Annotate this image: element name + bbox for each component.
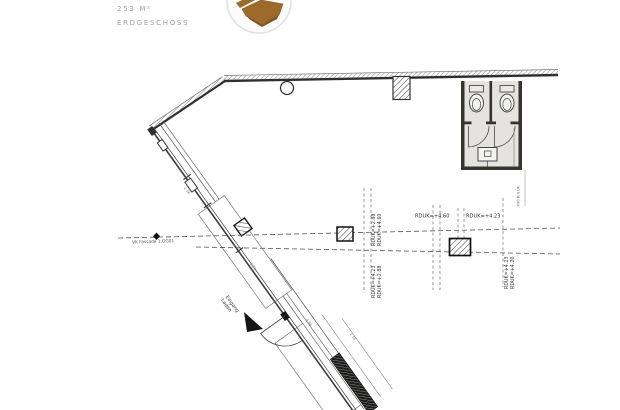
logo-badge [227, 0, 291, 33]
rduk-v1-line2: RDUK=+4.60 [377, 214, 382, 246]
topleft-diagonal-wall [149, 77, 225, 130]
facade-inner-lines [159, 121, 392, 410]
hatched-column [450, 239, 471, 256]
entrance-arrow-icon [244, 312, 263, 332]
rduk-label-v3: RDUK=+4.23 RDUK=+4.20 [505, 257, 515, 289]
wall-note-label: F90 Brü UK [517, 186, 521, 206]
floorplan-page: 253 M² ERDGESCHOSS VK Fassade 1.OG01 RDU… [0, 0, 620, 410]
facade-pier [198, 196, 292, 309]
rduk-label-h1: RDUK=+4.60 [415, 213, 449, 219]
mullion [157, 139, 168, 151]
area-label: 253 M² [117, 5, 152, 13]
rduk-v3-line2: RDUK=+4.20 [510, 257, 515, 289]
round-column [281, 82, 294, 95]
rduk-v2-line2: RDUK=+2.88 [377, 266, 382, 298]
toilet-icon [500, 86, 514, 113]
hatched-column [337, 227, 353, 241]
toilet-icon [470, 86, 484, 113]
rduk-label-v1: RDUK=+2.88 RDUK=+4.60 [372, 214, 382, 246]
rduk-label-v2: RDUK=+4.23 RDUK=+2.88 [372, 266, 382, 298]
wall-note-text: F90 Brü UK [517, 186, 521, 206]
square-pillar [393, 77, 410, 100]
floorplan-drawing [0, 0, 620, 410]
rduk-label-h2: RDUK=+4.23 [466, 213, 500, 219]
floor-label: ERDGESCHOSS [117, 19, 189, 27]
wc-room [461, 81, 522, 170]
top-exterior-wall [224, 70, 558, 82]
